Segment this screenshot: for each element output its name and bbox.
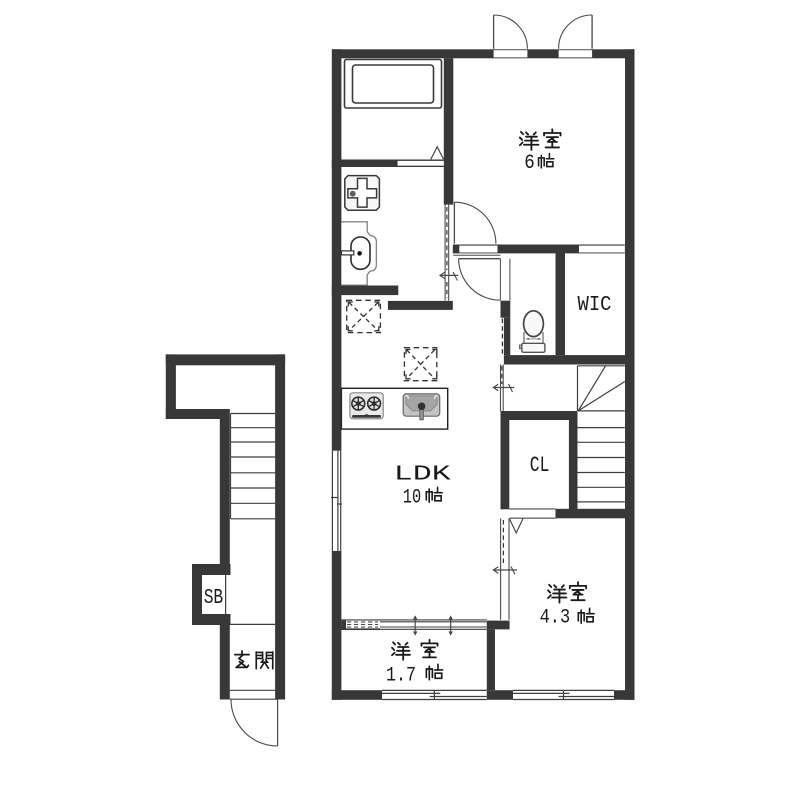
svg-text:4.3: 4.3 [540,607,571,630]
svg-text:CL: CL [530,453,550,478]
svg-text:6: 6 [524,152,535,175]
svg-text:1.7: 1.7 [386,665,416,688]
svg-text:LDK: LDK [394,463,451,487]
svg-text:10: 10 [403,487,421,510]
svg-text:WIC: WIC [578,293,612,317]
svg-text:SB: SB [204,586,224,610]
